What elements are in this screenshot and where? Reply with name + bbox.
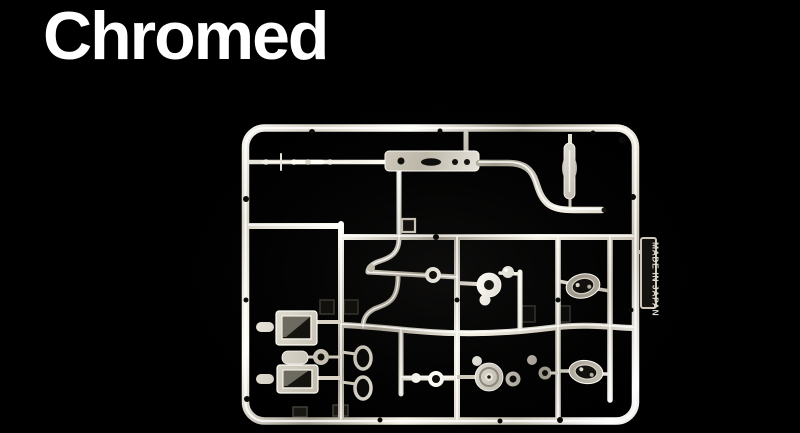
made-in-japan-tag: MADE IN JAPAN	[641, 238, 661, 316]
chrome-sprue-illustration: MADE IN JAPAN	[0, 0, 800, 433]
page: { "header": { "title": "Chromed", "title…	[0, 0, 800, 433]
product-photo: Chromed	[0, 0, 800, 433]
made-in-japan-label: MADE IN JAPAN	[651, 242, 661, 316]
bracket-part	[402, 219, 415, 232]
bumper-bar-part	[385, 151, 479, 171]
